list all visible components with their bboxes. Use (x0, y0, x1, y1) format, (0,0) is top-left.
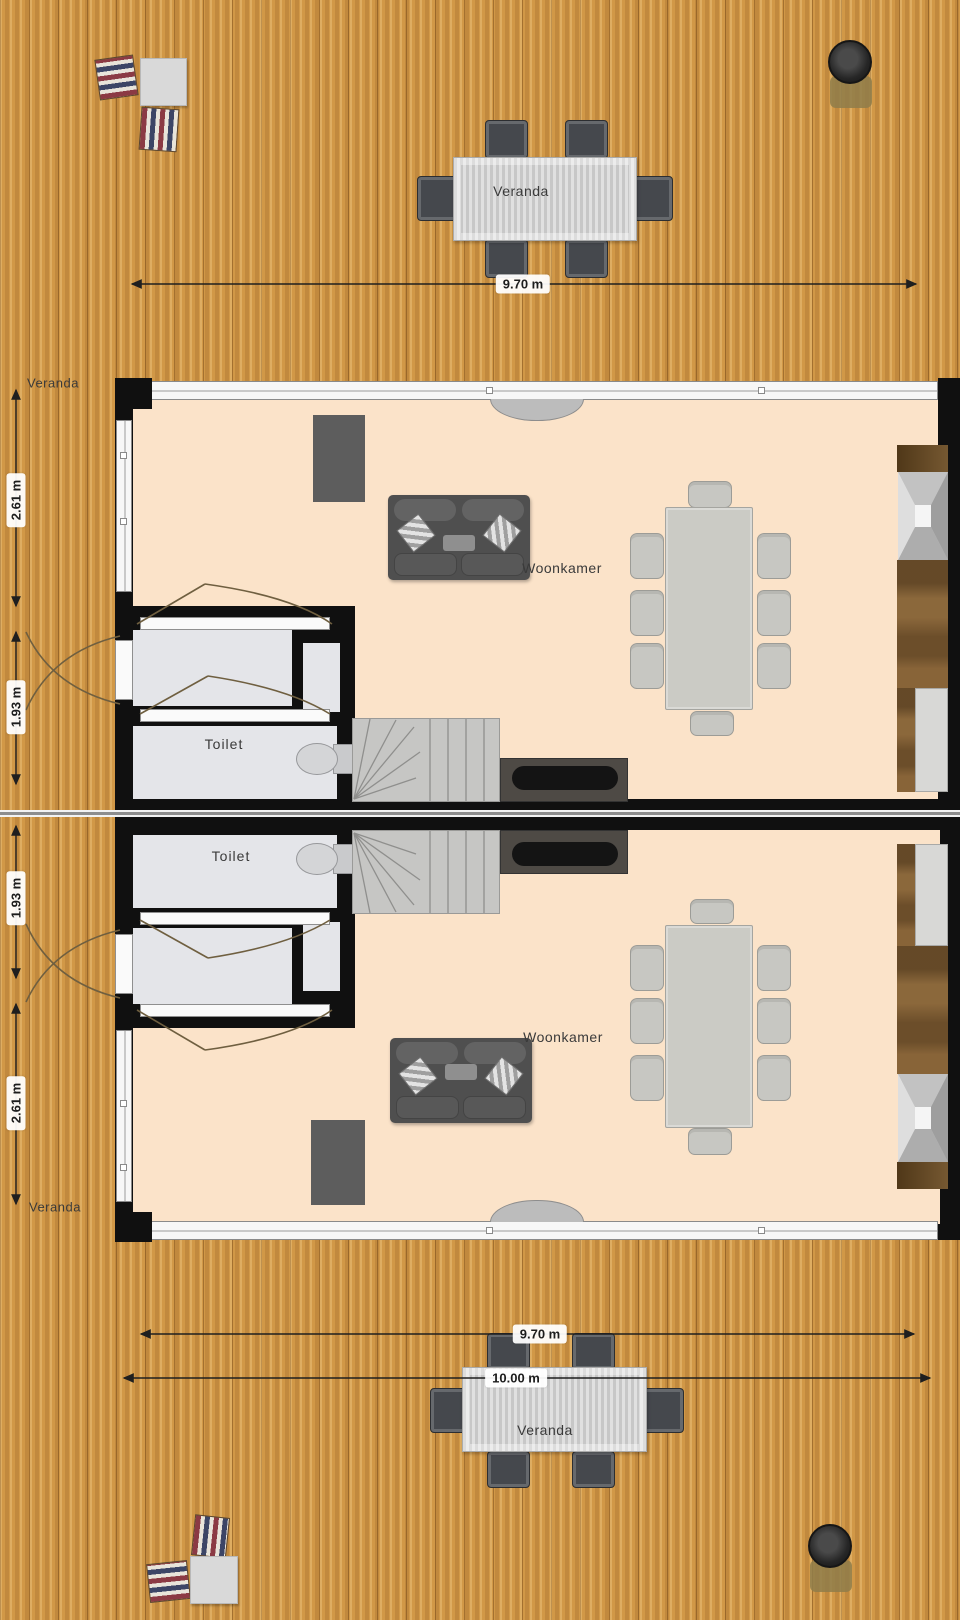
stairs-bottom-unit (352, 830, 500, 914)
stairs-top-unit (352, 718, 500, 802)
dining-chair (688, 481, 732, 508)
window-mullion (120, 518, 127, 525)
veranda-chair (572, 1451, 615, 1488)
window-mullion (758, 387, 765, 394)
window-mullion (486, 387, 493, 394)
veranda-side-label-bottom: Veranda (29, 1200, 81, 1215)
sofa-back-cushion (394, 499, 456, 521)
veranda-chair (485, 120, 528, 159)
sofa-seat-cushion (461, 553, 524, 576)
toilet-label-top: Toilet (205, 736, 244, 752)
sofa-back-cushion (464, 1042, 526, 1064)
left-window-top-unit (116, 420, 132, 592)
closet-floor-bottom-unit (303, 922, 340, 991)
dimension-label-living-depth-bottom: 2.61 m (7, 1076, 26, 1130)
veranda-chair (417, 176, 458, 221)
living-room-label-bottom-unit: Woonkamer (523, 1029, 603, 1045)
veranda-dining-table (453, 157, 637, 241)
window-mullion (120, 452, 127, 459)
living-room-label-top-unit: Woonkamer (522, 560, 602, 576)
dining-chair (630, 998, 664, 1044)
dimension-label-living-depth-top: 2.61 m (7, 473, 26, 527)
veranda-table-label: Veranda (493, 183, 549, 199)
dining-table-top-unit (665, 507, 753, 710)
kitchen-counter-dark (897, 445, 948, 472)
dimension-label-top-width: 9.70 m (496, 275, 550, 294)
kitchen-counter (897, 560, 948, 688)
entrance-hall-floor-bottom-unit (133, 928, 292, 1004)
beach-chair (146, 1560, 191, 1603)
kitchen-counter (897, 688, 915, 792)
kitchen-counter (897, 844, 915, 946)
toilet-bowl (296, 743, 338, 775)
dining-chair (688, 1128, 732, 1155)
veranda-chair (485, 239, 528, 278)
plot-divider-line (0, 810, 960, 817)
tv-unit-top (898, 472, 948, 560)
sofa-bottom-unit (390, 1038, 532, 1123)
window-mullion (120, 1100, 127, 1107)
floor-plan-canvas: Veranda Woonkamer (0, 0, 960, 1620)
veranda-chair (643, 1388, 684, 1433)
veranda-chair (565, 239, 608, 278)
dining-chair (757, 533, 791, 579)
hearth-top-unit (512, 766, 618, 790)
entry-door-top-unit (115, 640, 133, 700)
sofa-back-cushion (396, 1042, 458, 1064)
window-center-line (124, 421, 126, 591)
window-mullion (758, 1227, 765, 1234)
dining-chair (690, 899, 734, 924)
hearth-bottom-unit (512, 842, 618, 866)
window-mullion (120, 1164, 127, 1171)
bbq-grill (808, 1524, 852, 1568)
dining-chair (630, 1055, 664, 1101)
sofa-tray (443, 535, 475, 551)
dining-chair (630, 533, 664, 579)
sofa-seat-cushion (394, 553, 457, 576)
window-center-line (149, 390, 937, 392)
dimension-label-total-width: 10.00 m (485, 1369, 547, 1388)
dining-chair (690, 711, 734, 736)
dining-chair (757, 643, 791, 689)
left-window-bottom-unit (116, 1030, 132, 1202)
dining-chair (757, 998, 791, 1044)
dining-table-bottom-unit (665, 925, 753, 1128)
hall-door-top-unit (140, 617, 330, 630)
cabinet (311, 1120, 365, 1205)
dining-chair (630, 590, 664, 636)
dining-chair (630, 643, 664, 689)
dimension-label-hall-depth-bottom: 1.93 m (7, 871, 26, 925)
window-mullion (486, 1227, 493, 1234)
beach-chair (139, 107, 180, 153)
beach-chair (94, 54, 138, 100)
veranda-chair (487, 1451, 530, 1488)
dining-chair (757, 1055, 791, 1101)
sofa-seat-cushion (463, 1096, 526, 1119)
dining-chair (757, 590, 791, 636)
closet-floor-top-unit (303, 643, 340, 712)
toilet-door-bottom-unit (140, 912, 330, 925)
window-center-line (149, 1230, 937, 1232)
entrance-hall-floor-top-unit (133, 630, 292, 706)
toilet-label-bottom: Toilet (212, 848, 251, 864)
veranda-side-label-top: Veranda (27, 376, 79, 391)
toilet-bowl (296, 843, 338, 875)
glass-front-top-unit (148, 381, 938, 400)
kitchen-counter-dark (897, 1162, 948, 1189)
corner-wall (115, 1212, 152, 1242)
entry-door-bottom-unit (115, 934, 133, 994)
dining-chair (630, 945, 664, 991)
veranda-chair (572, 1333, 615, 1370)
appliance (915, 688, 948, 792)
appliance (915, 844, 948, 946)
dimension-label-bottom-width: 9.70 m (513, 1325, 567, 1344)
beach-chair (191, 1514, 230, 1558)
sofa-back-cushion (462, 499, 524, 521)
toilet-door-top-unit (140, 709, 330, 722)
sofa-tray (445, 1064, 477, 1080)
veranda-chair (632, 176, 673, 221)
side-table (190, 1556, 238, 1604)
sofa-seat-cushion (396, 1096, 459, 1119)
bbq-grill (828, 40, 872, 84)
cabinet (313, 415, 365, 502)
tv-unit-bottom (898, 1074, 948, 1162)
hall-door-bottom-unit (140, 1004, 330, 1017)
window-center-line (124, 1031, 126, 1201)
veranda-table-label: Veranda (517, 1422, 573, 1438)
sofa-top-unit (388, 495, 530, 580)
side-table (140, 58, 187, 106)
dimension-label-hall-depth-top: 1.93 m (7, 680, 26, 734)
glass-front-bottom-unit (148, 1221, 938, 1240)
dining-chair (757, 945, 791, 991)
veranda-chair (565, 120, 608, 159)
kitchen-counter (897, 946, 948, 1074)
